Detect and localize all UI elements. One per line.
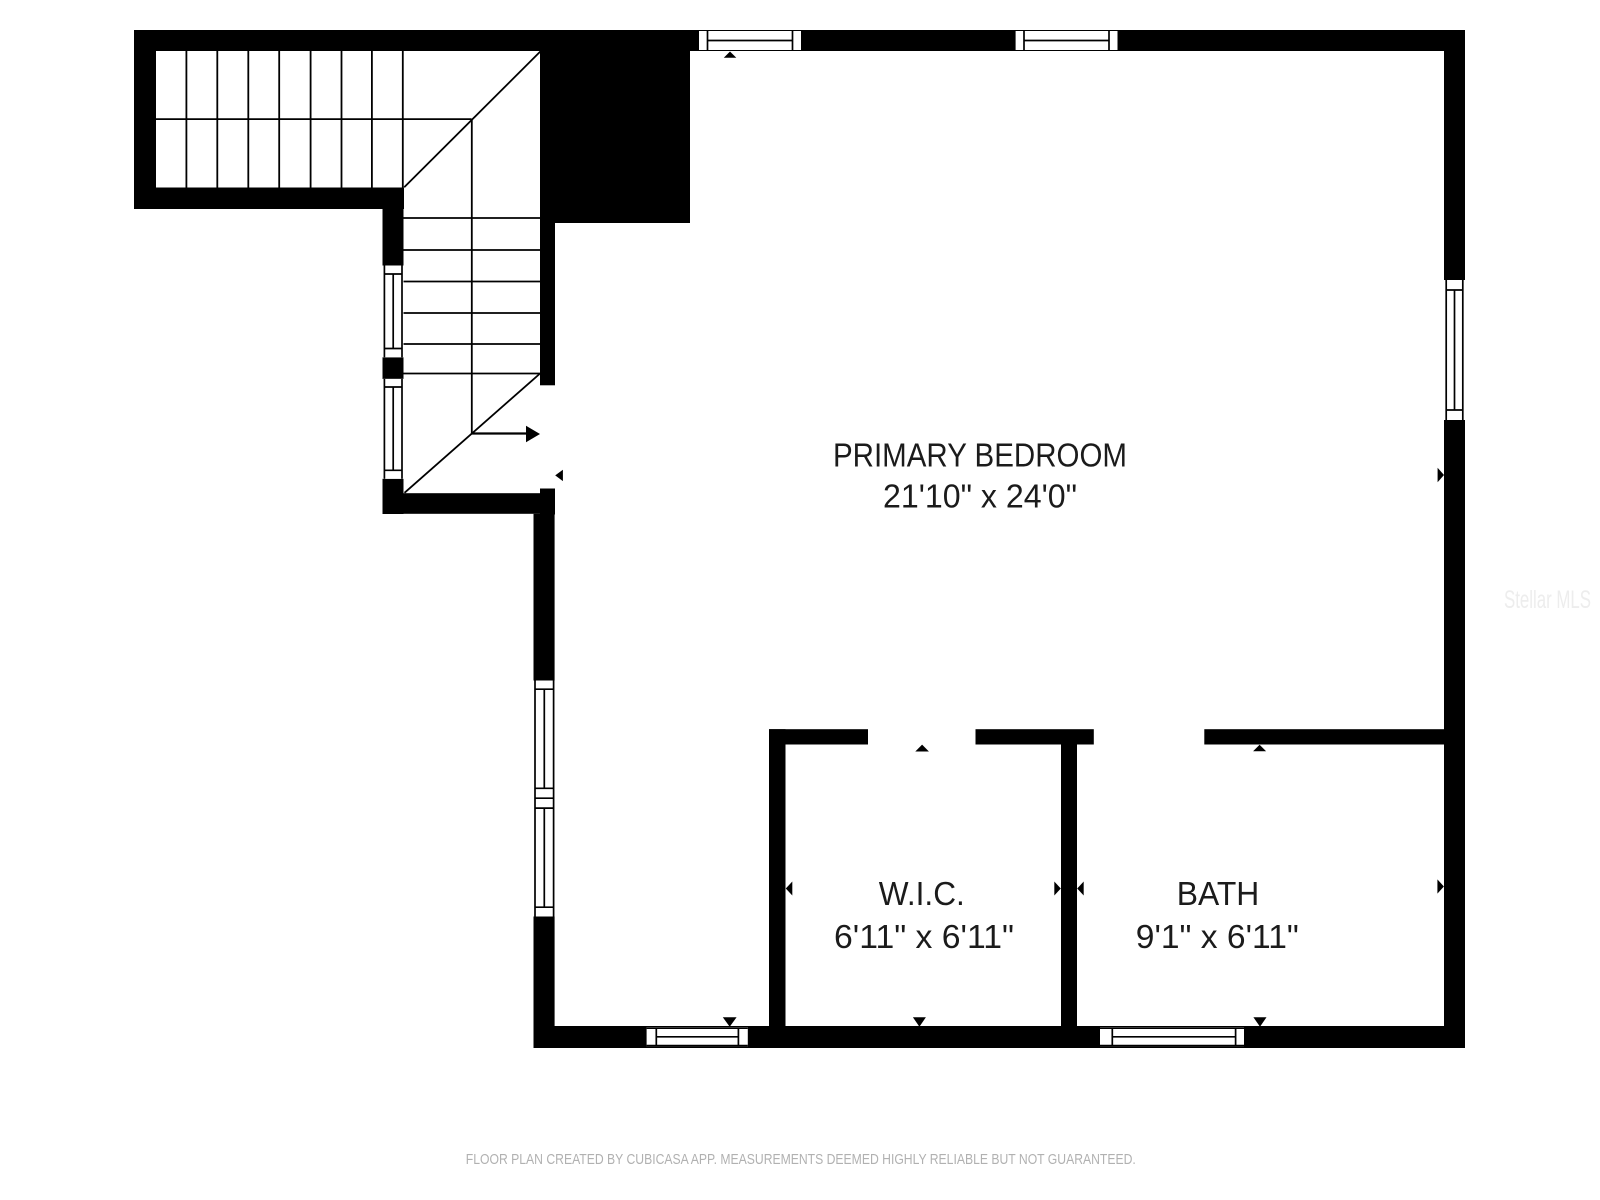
svg-text:9'1" x 6'11": 9'1" x 6'11" xyxy=(1136,919,1299,956)
svg-text:6'11" x 6'11": 6'11" x 6'11" xyxy=(834,919,1014,956)
svg-text:21'10" x 24'0": 21'10" x 24'0" xyxy=(883,479,1077,516)
svg-text:W.I.C.: W.I.C. xyxy=(879,875,965,912)
svg-text:PRIMARY BEDROOM: PRIMARY BEDROOM xyxy=(833,436,1127,473)
svg-text:Stellar MLS: Stellar MLS xyxy=(1504,586,1591,614)
svg-text:FLOOR PLAN CREATED BY CUBICASA: FLOOR PLAN CREATED BY CUBICASA APP. MEAS… xyxy=(466,1151,1136,1168)
svg-text:BATH: BATH xyxy=(1177,875,1260,912)
